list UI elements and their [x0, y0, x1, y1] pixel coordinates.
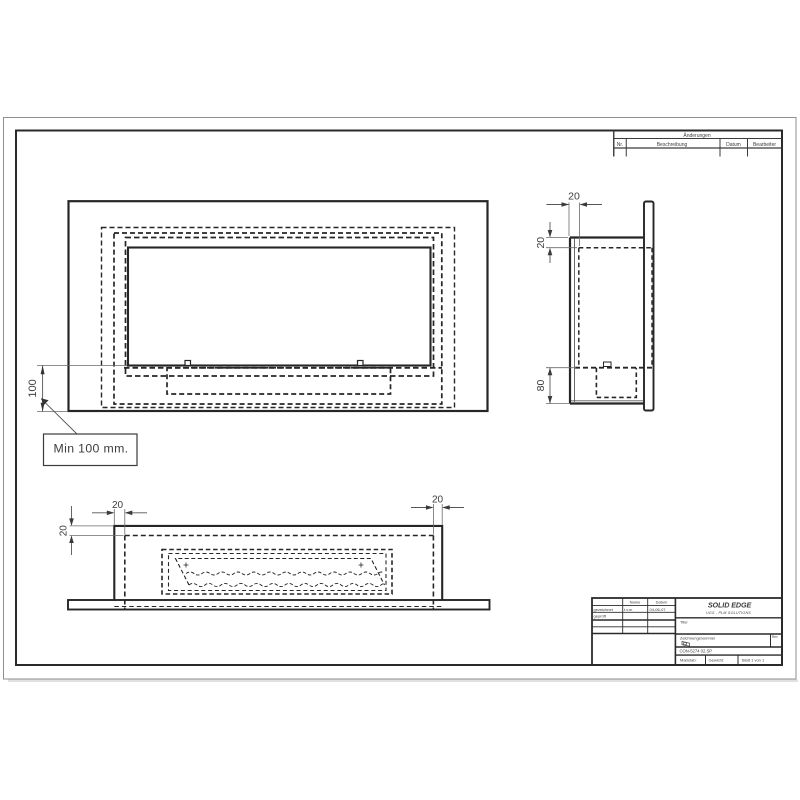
svg-text:Rev: Rev — [772, 635, 778, 639]
svg-text:20: 20 — [59, 525, 70, 537]
svg-text:Blatt 1 von 1: Blatt 1 von 1 — [742, 658, 765, 663]
svg-text:Nr.: Nr. — [617, 142, 623, 148]
svg-text:04-06-07: 04-06-07 — [650, 607, 667, 612]
svg-text:Name: Name — [630, 600, 641, 605]
svg-text:Titel: Titel — [680, 620, 688, 625]
svg-text:t.v.m: t.v.m — [624, 607, 633, 612]
svg-text:Gewicht:: Gewicht: — [709, 658, 725, 663]
svg-text:UGS - PLM SOLUTIONS: UGS - PLM SOLUTIONS — [706, 611, 751, 615]
svg-text:100: 100 — [27, 379, 39, 397]
svg-text:Beschreibung: Beschreibung — [657, 142, 688, 148]
svg-text:Bearbeiter: Bearbeiter — [753, 142, 776, 148]
svg-text:Datum: Datum — [726, 142, 741, 148]
svg-text:Datum: Datum — [656, 600, 668, 605]
svg-text:geprüft: geprüft — [594, 614, 607, 619]
svg-text:Zeichnungsnummer: Zeichnungsnummer — [680, 636, 716, 641]
svg-text:20: 20 — [112, 500, 124, 511]
svg-text:SOLID EDGE: SOLID EDGE — [708, 601, 752, 610]
svg-text:gezeichnet: gezeichnet — [594, 607, 614, 612]
svg-text:80: 80 — [535, 380, 547, 392]
svg-text:20: 20 — [568, 191, 580, 203]
svg-text:20: 20 — [535, 237, 547, 249]
svg-text:20: 20 — [432, 495, 444, 506]
svg-text:Änderungen: Änderungen — [683, 132, 710, 139]
svg-text:Maßstab:: Maßstab: — [680, 658, 697, 663]
svg-text:Min 100 mm.: Min 100 mm. — [54, 442, 129, 456]
svg-text:CON-5274 02.SP: CON-5274 02.SP — [680, 649, 713, 654]
